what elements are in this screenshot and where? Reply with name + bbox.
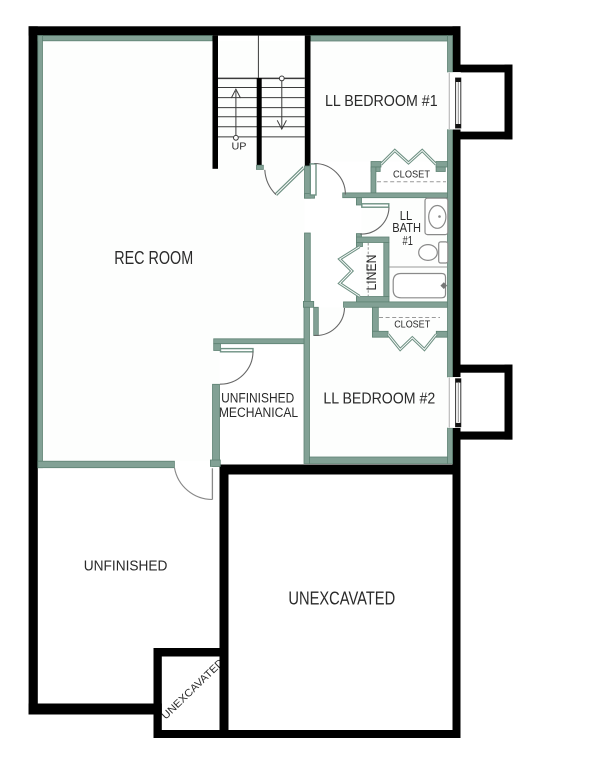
svg-text:LL BEDROOM #2: LL BEDROOM #2 xyxy=(323,390,435,407)
svg-text:UP: UP xyxy=(232,142,247,153)
svg-text:UNEXCAVATED: UNEXCAVATED xyxy=(288,588,395,608)
svg-text:REC ROOM: REC ROOM xyxy=(114,248,193,268)
svg-text:UNFINISHED: UNFINISHED xyxy=(84,559,168,575)
svg-text:LL BEDROOM #1: LL BEDROOM #1 xyxy=(325,93,438,110)
svg-text:#1: #1 xyxy=(403,234,413,248)
svg-text:CLOSET: CLOSET xyxy=(393,170,430,181)
svg-text:MECHANICAL: MECHANICAL xyxy=(219,405,299,420)
svg-text:CLOSET: CLOSET xyxy=(394,320,430,331)
svg-text:BATH: BATH xyxy=(392,221,421,235)
svg-text:UNFINISHED: UNFINISHED xyxy=(221,390,294,405)
svg-text:LINEN: LINEN xyxy=(364,255,379,291)
